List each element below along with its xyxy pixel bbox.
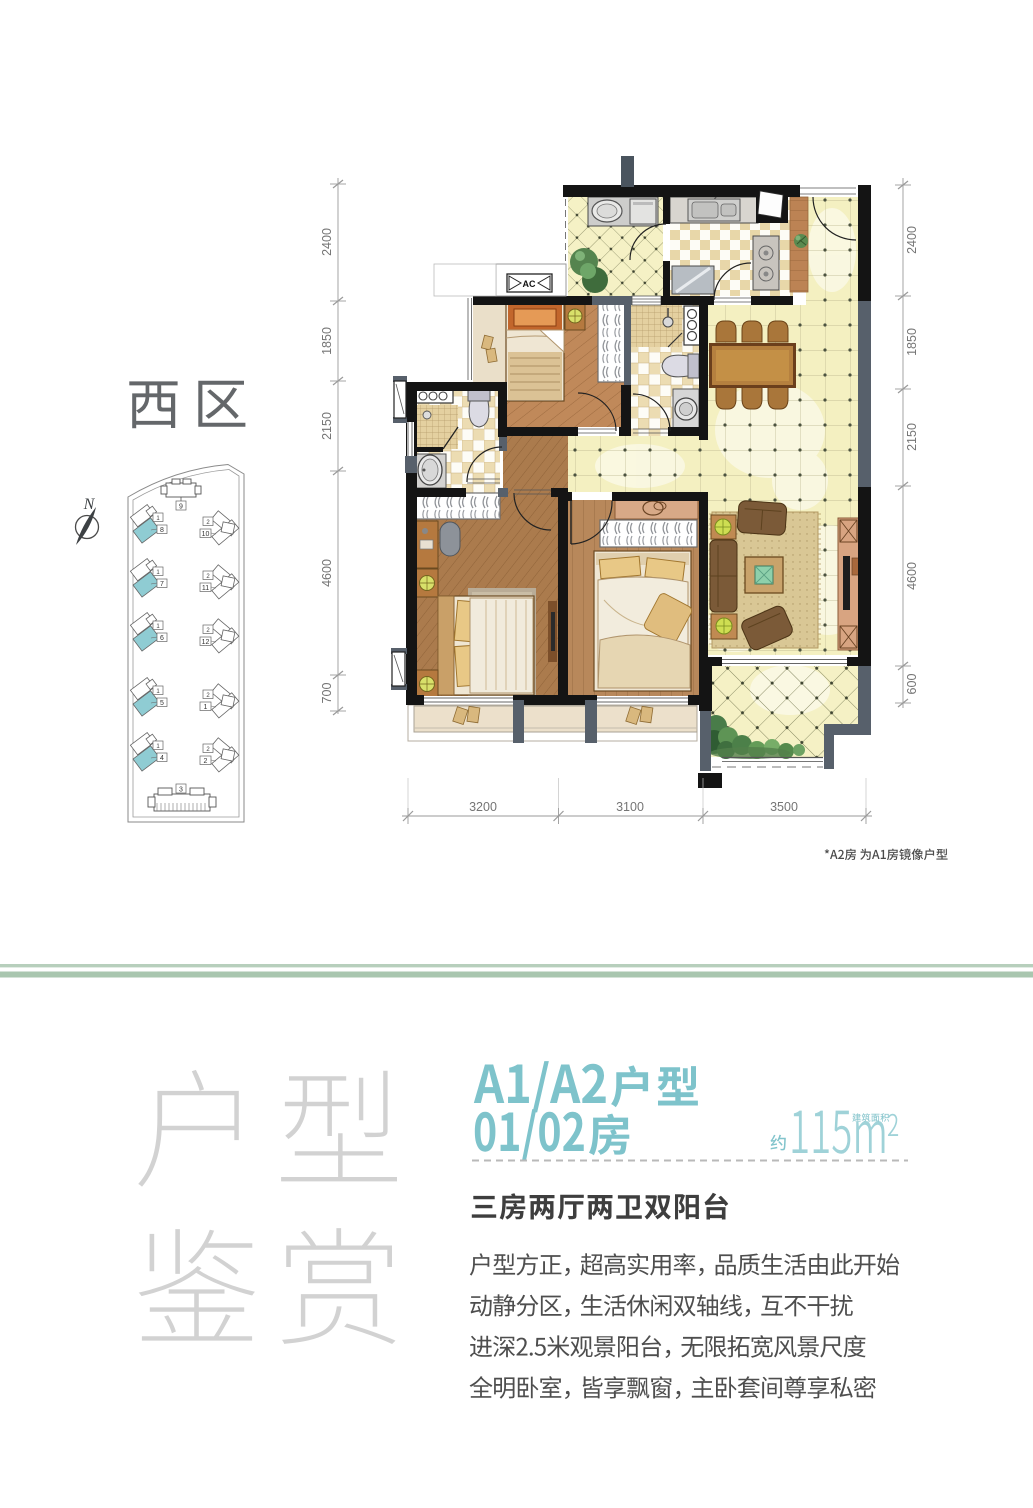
svg-text:600: 600 [905,674,919,695]
svg-text:12: 12 [202,639,210,646]
svg-text:2: 2 [204,758,208,765]
svg-text:3: 3 [179,787,183,794]
svg-text:1850: 1850 [905,328,919,356]
svg-text:9: 9 [179,504,183,511]
svg-text:700: 700 [320,683,334,704]
svg-text:4600: 4600 [905,562,919,590]
svg-text:11: 11 [202,585,209,592]
svg-text:2150: 2150 [320,412,334,440]
svg-text:3200: 3200 [469,800,497,814]
svg-text:1850: 1850 [320,327,334,355]
svg-text:1: 1 [204,704,208,711]
svg-text:6: 6 [160,635,164,642]
svg-text:5: 5 [160,700,164,707]
svg-text:2400: 2400 [320,228,334,256]
svg-text:4: 4 [160,755,164,762]
svg-text:AC: AC [523,279,536,289]
svg-text:8: 8 [160,527,164,534]
svg-text:2150: 2150 [905,423,919,451]
svg-text:3100: 3100 [616,800,644,814]
svg-text:4600: 4600 [320,559,334,587]
svg-text:3500: 3500 [770,800,798,814]
svg-text:10: 10 [202,531,210,538]
svg-text:N: N [83,496,96,513]
svg-text:7: 7 [160,581,164,588]
svg-text:2400: 2400 [905,226,919,254]
